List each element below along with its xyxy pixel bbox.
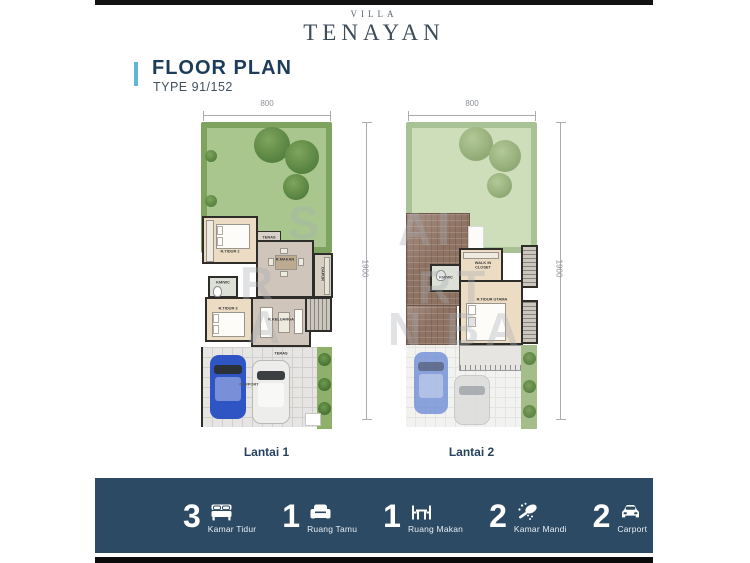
feature-living-room: 1 Ruang Tamu bbox=[282, 498, 357, 534]
blue-car bbox=[210, 355, 246, 419]
kitchen-counter bbox=[324, 257, 330, 295]
sofa-icon bbox=[307, 502, 334, 522]
room-label: CARPORT bbox=[239, 383, 258, 387]
room-label: R.TIDUR 2 bbox=[220, 250, 239, 254]
curb bbox=[305, 413, 321, 426]
watermark-text: N BA bbox=[388, 302, 524, 356]
page-title: FLOOR PLAN bbox=[152, 57, 292, 80]
pillow bbox=[217, 237, 223, 246]
pillow bbox=[213, 314, 219, 323]
plan2-width-dimension-line bbox=[408, 115, 536, 116]
plan1-stairs bbox=[305, 297, 332, 332]
tree-icon bbox=[487, 173, 512, 198]
pillow bbox=[217, 226, 223, 235]
feature-label: Kamar Mandi bbox=[514, 524, 567, 534]
watermark-text: AI bbox=[398, 202, 456, 256]
feature-summary-bar: 3 Kamar Tidur 1 bbox=[95, 478, 653, 553]
sofa bbox=[294, 309, 303, 334]
car-roof bbox=[419, 374, 443, 398]
wardrobe bbox=[206, 220, 214, 262]
shower-icon bbox=[514, 502, 541, 522]
bathroom-count: 2 bbox=[489, 500, 507, 532]
tree-icon bbox=[489, 140, 521, 172]
toilet bbox=[213, 286, 222, 297]
bush-icon bbox=[205, 150, 217, 162]
room-label: DAPUR bbox=[320, 267, 324, 281]
palm-icon bbox=[318, 353, 331, 366]
feature-label: Kamar Tidur bbox=[208, 524, 257, 534]
chair bbox=[298, 258, 304, 266]
gray-car-ghost bbox=[454, 375, 490, 425]
feature-carport: 2 Carport bbox=[593, 498, 648, 534]
car-windshield bbox=[459, 386, 485, 395]
chair bbox=[280, 271, 288, 277]
watermark-text: A bbox=[247, 300, 286, 354]
plan1-caption: Lantai 1 bbox=[201, 445, 332, 459]
palm-icon bbox=[523, 405, 536, 418]
room-label: TERAS bbox=[262, 236, 275, 240]
car-icon bbox=[617, 502, 644, 522]
feature-label: Ruang Tamu bbox=[307, 524, 357, 534]
type-subtitle: TYPE 91/152 bbox=[153, 80, 233, 94]
carport-count: 2 bbox=[593, 500, 611, 532]
wardrobe bbox=[463, 252, 499, 259]
plan2-width-dimension: 800 bbox=[408, 99, 536, 108]
pillow bbox=[213, 325, 219, 334]
palm-icon bbox=[523, 380, 536, 393]
brand-name: TENAYAN bbox=[95, 20, 653, 46]
feature-dining-room: 1 Ruang Makan bbox=[383, 498, 463, 534]
plan2-caption: Lantai 2 bbox=[406, 445, 537, 459]
chair bbox=[280, 248, 288, 254]
car-windshield bbox=[214, 365, 242, 374]
bottom-border-strip bbox=[95, 557, 653, 563]
white-car bbox=[252, 360, 290, 424]
plan1-width-dimension: 800 bbox=[203, 99, 331, 108]
plan2-height-dimension: 1900 bbox=[554, 260, 563, 278]
feature-bedrooms: 3 Kamar Tidur bbox=[183, 498, 256, 534]
plan2-stairs-upper bbox=[521, 245, 538, 288]
bed-icon bbox=[208, 502, 235, 522]
living-room-count: 1 bbox=[282, 500, 300, 532]
feature-label: Carport bbox=[617, 524, 647, 534]
title-accent-bar bbox=[134, 62, 138, 86]
dining-room-count: 1 bbox=[383, 500, 401, 532]
plan1-height-dimension: 1900 bbox=[360, 260, 369, 278]
palm-icon bbox=[523, 352, 536, 365]
car-windshield bbox=[257, 371, 285, 380]
top-border-strip bbox=[95, 0, 653, 5]
palm-icon bbox=[318, 378, 331, 391]
balcony-railing bbox=[460, 365, 522, 370]
brand-header: VILLA TENAYAN bbox=[95, 9, 653, 46]
feature-bathrooms: 2 Kamar Mandi bbox=[489, 498, 567, 534]
bush-icon bbox=[205, 195, 217, 207]
brand-eyebrow: VILLA bbox=[95, 9, 653, 19]
car-roof bbox=[258, 383, 284, 407]
room-label: KM/WC bbox=[216, 281, 230, 285]
blue-car-ghost bbox=[414, 352, 448, 414]
tree-icon bbox=[459, 127, 493, 161]
car-roof bbox=[215, 377, 241, 401]
bedroom-count: 3 bbox=[183, 500, 201, 532]
dining-table-icon bbox=[408, 502, 435, 522]
room-label: R.TIDUR 3 bbox=[218, 307, 237, 311]
plan1-bathroom bbox=[208, 276, 238, 298]
tree-icon bbox=[285, 140, 319, 174]
watermark-text: S bbox=[288, 196, 325, 250]
car-windshield bbox=[418, 362, 444, 371]
plan1-width-dimension-line bbox=[203, 115, 331, 116]
floor-plan-poster: VILLA TENAYAN FLOOR PLAN TYPE 91/152 800… bbox=[0, 0, 750, 563]
feature-label: Ruang Makan bbox=[408, 524, 463, 534]
